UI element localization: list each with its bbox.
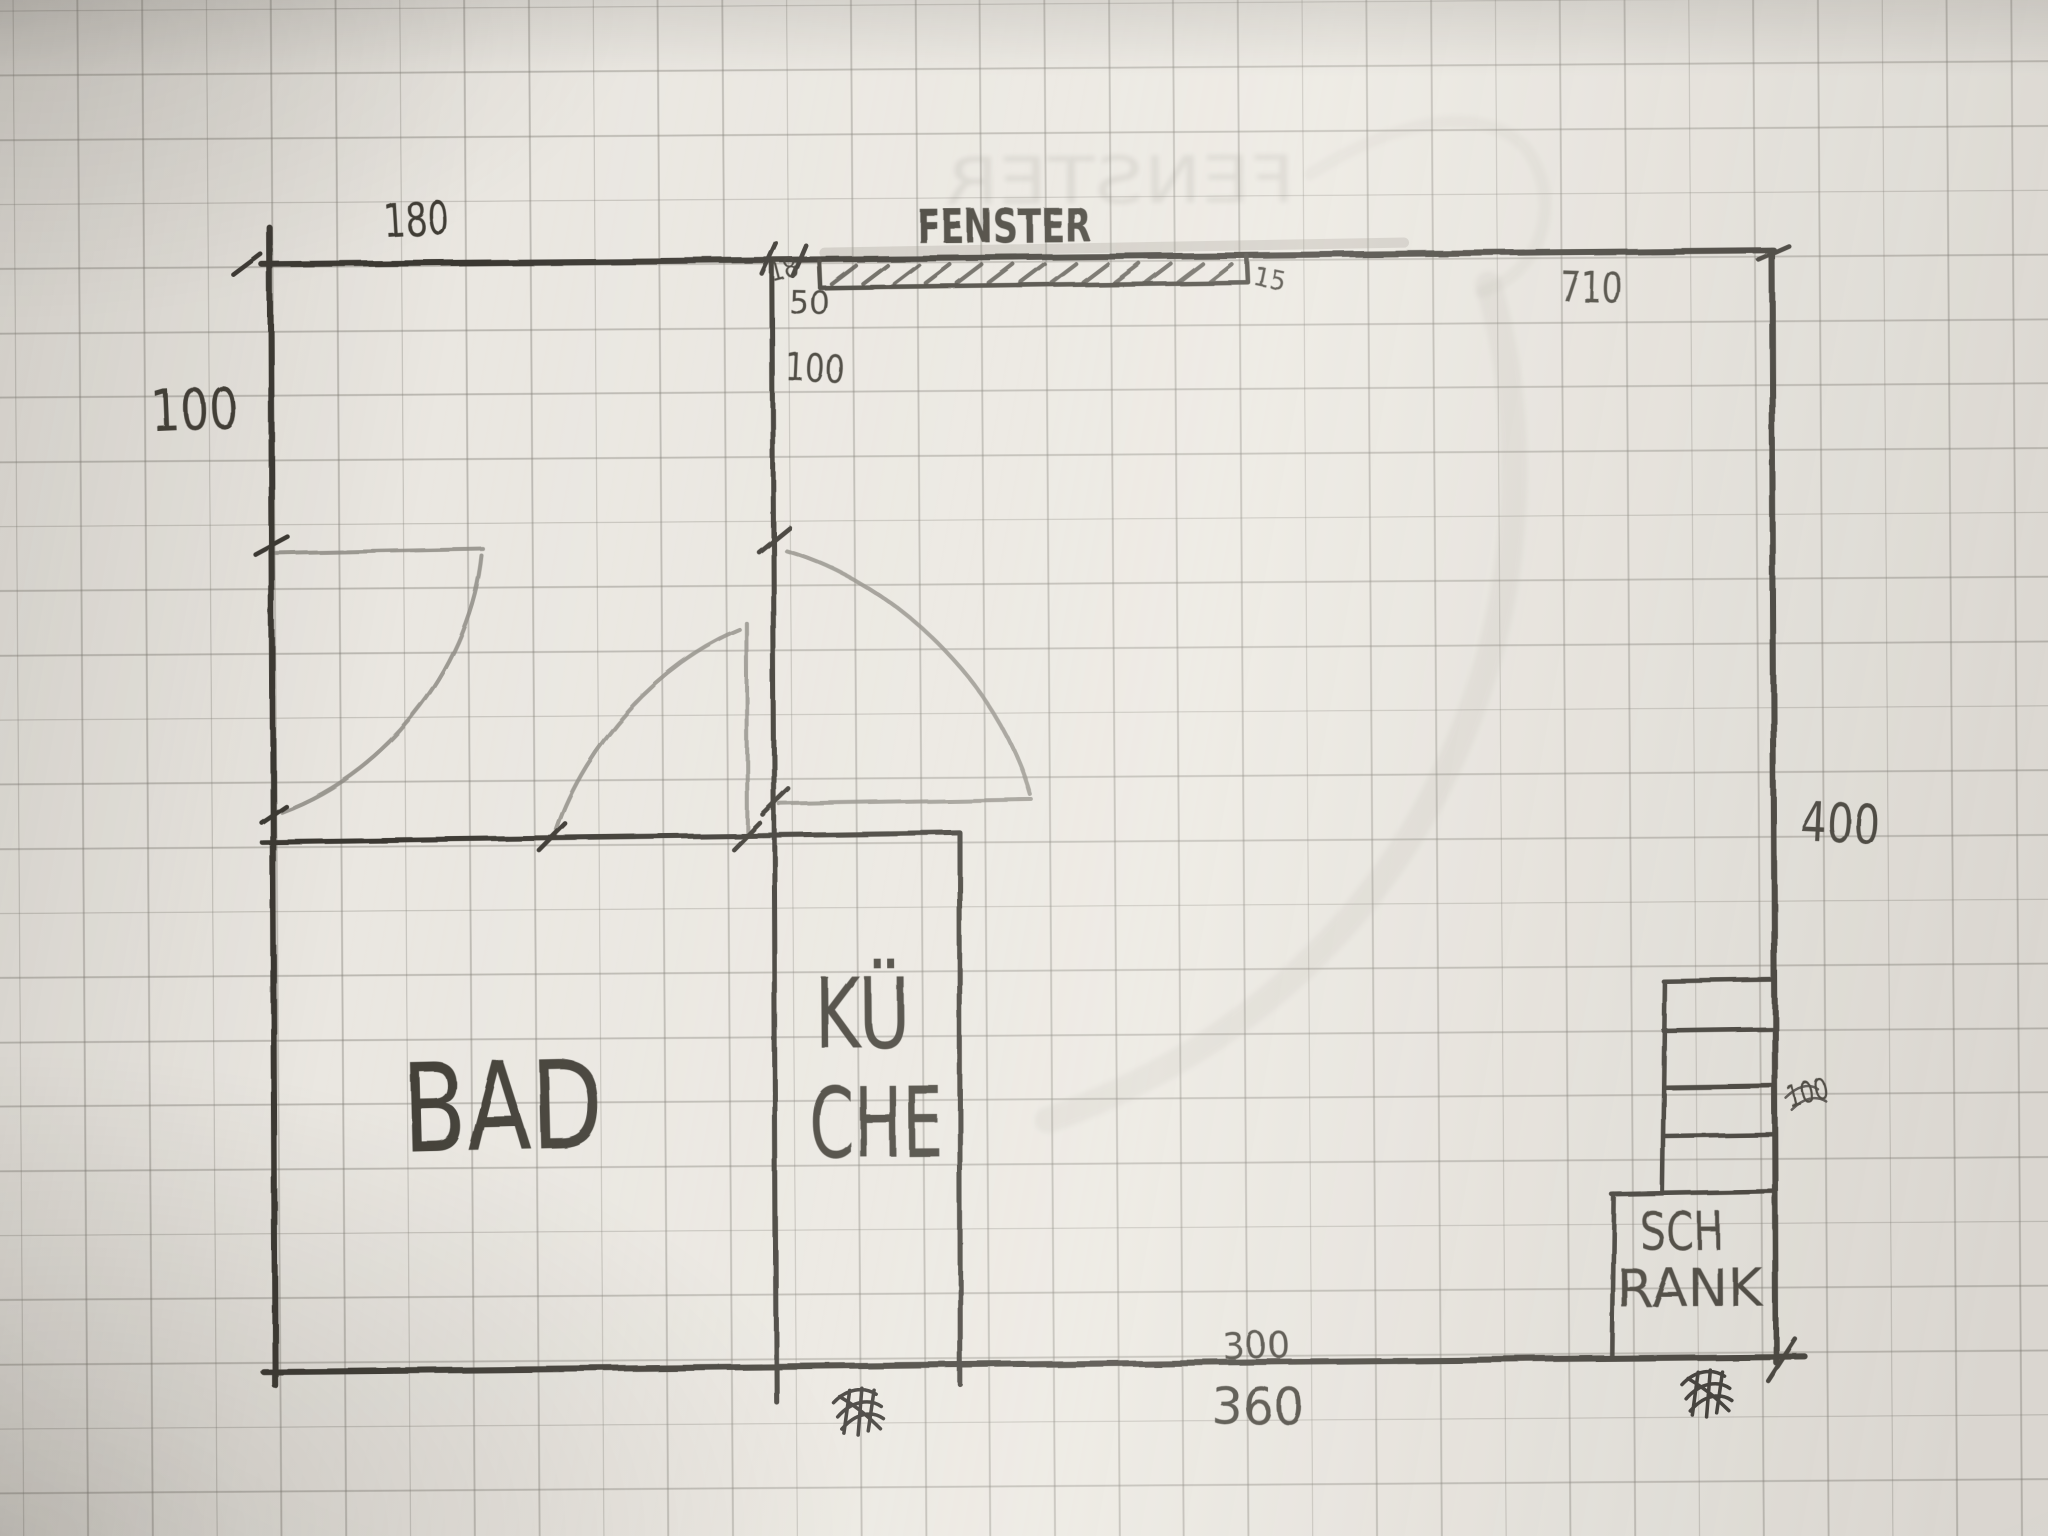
wall-left (267, 228, 278, 1385)
wall-kitchen-right (956, 832, 963, 1384)
walls (256, 218, 1805, 1406)
room-label-bad: BAD (401, 1034, 605, 1181)
dim-window-offset-50: 50 (788, 283, 830, 322)
wall-kitchen-left (769, 260, 780, 1402)
handwritten-labels: FENSTER BAD KÜ CHE SCH RANK (395, 195, 1764, 1328)
paper-tilt-wrapper: FENSTER (0, 0, 2048, 1536)
kitchen-door-arc (786, 549, 1030, 796)
entrance-door-leaf (275, 548, 482, 552)
door-symbols (275, 545, 1031, 836)
scribbled-out-dimension-2 (1682, 1370, 1732, 1417)
scribbled-out-dimension-1 (833, 1388, 883, 1435)
dim-window-gap-15: 15 (1251, 262, 1289, 298)
dimension-ticks (234, 236, 1797, 1392)
dimension-numbers: 180 100 100 18 50 15 710 400 300 360 100 (148, 182, 1886, 1445)
dim-left-100: 100 (150, 375, 240, 445)
ghost-smudge-curl (1310, 121, 1546, 293)
window-end-right (1247, 256, 1248, 282)
wall-right (1768, 250, 1779, 1362)
closet-label-line1: SCH (1640, 1201, 1724, 1263)
label-fenster: FENSTER (917, 200, 1092, 255)
bathroom-door-arc (555, 630, 741, 829)
shelf-block-lines (1661, 980, 1776, 1193)
dim-bottom-300: 300 (1222, 1323, 1291, 1369)
graphite-smear-above-window (824, 243, 1404, 253)
entrance-door-arc (280, 556, 484, 812)
wardrobe-left-edge (1611, 1194, 1615, 1357)
ghost-marks: FENSTER (824, 121, 1552, 1122)
dim-shelf-100: 100 (1783, 1072, 1832, 1113)
dim-top-right-710: 710 (1559, 262, 1623, 314)
floorplan-drawing: FENSTER (0, 0, 2048, 1536)
bathroom-door-leaf (746, 624, 748, 833)
wardrobe-top-edge (1612, 1191, 1776, 1194)
window-hatching (832, 263, 1232, 284)
dim-top-left-180: 180 (382, 192, 450, 250)
tick-bottom-right-corner (1768, 1339, 1796, 1381)
wall-bathroom-top (262, 832, 958, 842)
dim-right-400: 400 (1799, 790, 1881, 858)
photo-of-floorplan-sketch: FENSTER (0, 0, 2048, 1536)
dim-bottom-360: 360 (1211, 1376, 1305, 1436)
dim-kitchenwall-100: 100 (784, 345, 845, 393)
wall-bottom (264, 1356, 1805, 1372)
ghost-smudge-arc (1042, 284, 1519, 1120)
closet-label-line2: RANK (1616, 1258, 1764, 1320)
kitchen-door-leaf (780, 799, 1032, 804)
room-label-kueche-line2: CHE (809, 1066, 944, 1180)
arrow-topdim-left (234, 255, 262, 275)
window-sill (821, 282, 1247, 288)
room-label-kueche-line1: KÜ (814, 957, 910, 1071)
